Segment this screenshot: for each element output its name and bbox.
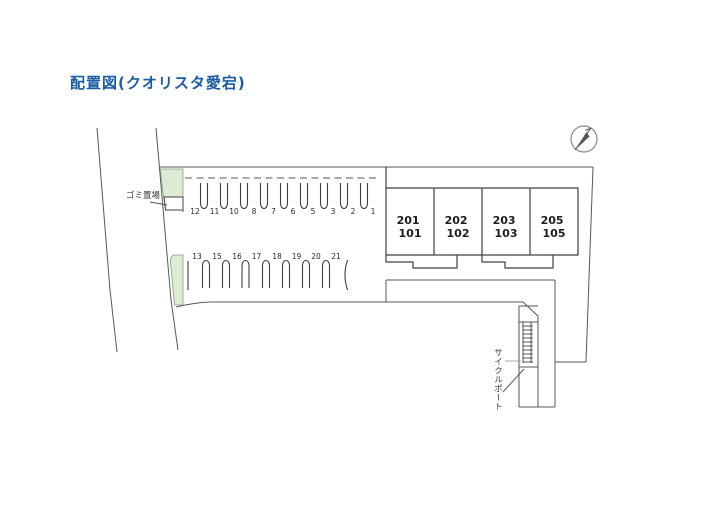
unit-lower-number: 105: [543, 227, 566, 240]
parking-divider: [303, 261, 310, 289]
road-line-right: [156, 128, 178, 350]
parking-space-number: 12: [190, 207, 200, 216]
parking-divider: [221, 183, 228, 208]
road-lines: [97, 128, 178, 352]
unit-label: 202 102: [445, 214, 472, 240]
green-areas: [160, 169, 183, 305]
road-line-left: [97, 128, 117, 352]
parking-space-number: 19: [292, 252, 302, 261]
parking-space-number: 1: [371, 207, 376, 216]
cycle-rack-icon: [523, 322, 533, 363]
parking-space-number: 21: [331, 252, 341, 261]
garbage-area-box: [164, 197, 183, 210]
unit-lower-number: 101: [399, 227, 422, 240]
site-boundary: [160, 167, 593, 362]
unit-lower-number: 103: [495, 227, 518, 240]
corridor-middle-wall: [523, 302, 538, 407]
site-plan-page: 配置図(クオリスタ愛宕): [0, 0, 720, 508]
parking-divider: [345, 260, 348, 290]
unit-label: 205 105: [541, 214, 568, 240]
parking-row2-numbers: 13 15 16 17 18 19 20 21: [192, 252, 341, 261]
parking-divider: [201, 183, 208, 209]
parking-divider: [261, 183, 268, 209]
parking-space-number: 7: [271, 207, 276, 216]
parking-space-number: 3: [331, 207, 336, 216]
parking-row1-dividers: [201, 183, 368, 209]
green-area-bottom: [170, 255, 183, 305]
unit-label: 203 103: [493, 214, 520, 240]
parking-space-number: 8: [252, 207, 257, 216]
parking-space-number: 13: [192, 252, 202, 261]
north-arrow-icon: [571, 126, 597, 152]
parking-divider: [283, 261, 290, 289]
entrance-porch: [386, 255, 457, 268]
unit-upper-number: 201: [397, 214, 420, 227]
parking-space-number: 6: [291, 207, 296, 216]
unit-lower-number: 102: [447, 227, 470, 240]
parking-divider: [341, 183, 348, 209]
parking-space-number: 10: [229, 207, 239, 216]
site-plan-drawing: 12 11 10 8 7 6 5 3 2 1 13 15 16: [0, 0, 720, 508]
parking-divider: [323, 261, 330, 289]
parking-space-number: 15: [212, 252, 222, 261]
entrance-porch: [482, 255, 553, 268]
parking-space-number: 11: [210, 207, 220, 216]
parking-divider: [301, 183, 308, 209]
parking-space-number: 5: [311, 207, 316, 216]
parking-divider: [281, 183, 288, 209]
parking-space-number: 18: [272, 252, 282, 261]
parking-divider: [361, 183, 368, 209]
parking-divider: [203, 261, 210, 289]
parking-divider: [263, 261, 270, 289]
green-area-top: [160, 169, 183, 197]
unit-upper-number: 202: [445, 214, 468, 227]
parking-divider: [321, 183, 328, 209]
parking-divider: [241, 183, 248, 209]
parking-divider: [242, 261, 249, 289]
parking-row2-dividers: [188, 260, 348, 290]
parking-space-number: 2: [351, 207, 356, 216]
cycle-port-label: サイクルポート: [493, 348, 502, 411]
parking-space-number: 16: [232, 252, 242, 261]
boundary-right: [555, 167, 593, 362]
parking-bottom-edge: [176, 302, 523, 307]
unit-label: 201 101: [397, 214, 424, 240]
walkway: [386, 280, 555, 407]
parking-space-number: 17: [252, 252, 262, 261]
parking-space-number: 20: [311, 252, 321, 261]
cycle-pointer-diagonal: [503, 369, 524, 392]
parking-divider: [223, 261, 230, 289]
garbage-area-label: ゴミ置場: [126, 192, 160, 201]
unit-upper-number: 203: [493, 214, 516, 227]
unit-upper-number: 205: [541, 214, 564, 227]
